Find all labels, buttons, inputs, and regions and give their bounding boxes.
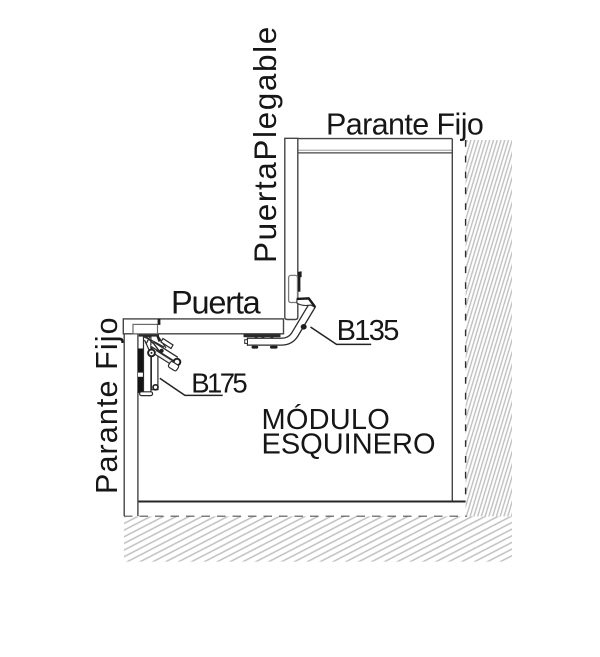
svg-text:PuertaPlegable: PuertaPlegable (247, 25, 283, 263)
svg-text:Puerta: Puerta (171, 284, 262, 320)
svg-text:Parante Fijo: Parante Fijo (90, 316, 124, 494)
svg-text:B135: B135 (337, 315, 399, 347)
svg-text:Parante Fijo: Parante Fijo (326, 108, 483, 142)
svg-text:B175: B175 (191, 368, 247, 399)
svg-text:ESQUINERO: ESQUINERO (262, 428, 436, 460)
